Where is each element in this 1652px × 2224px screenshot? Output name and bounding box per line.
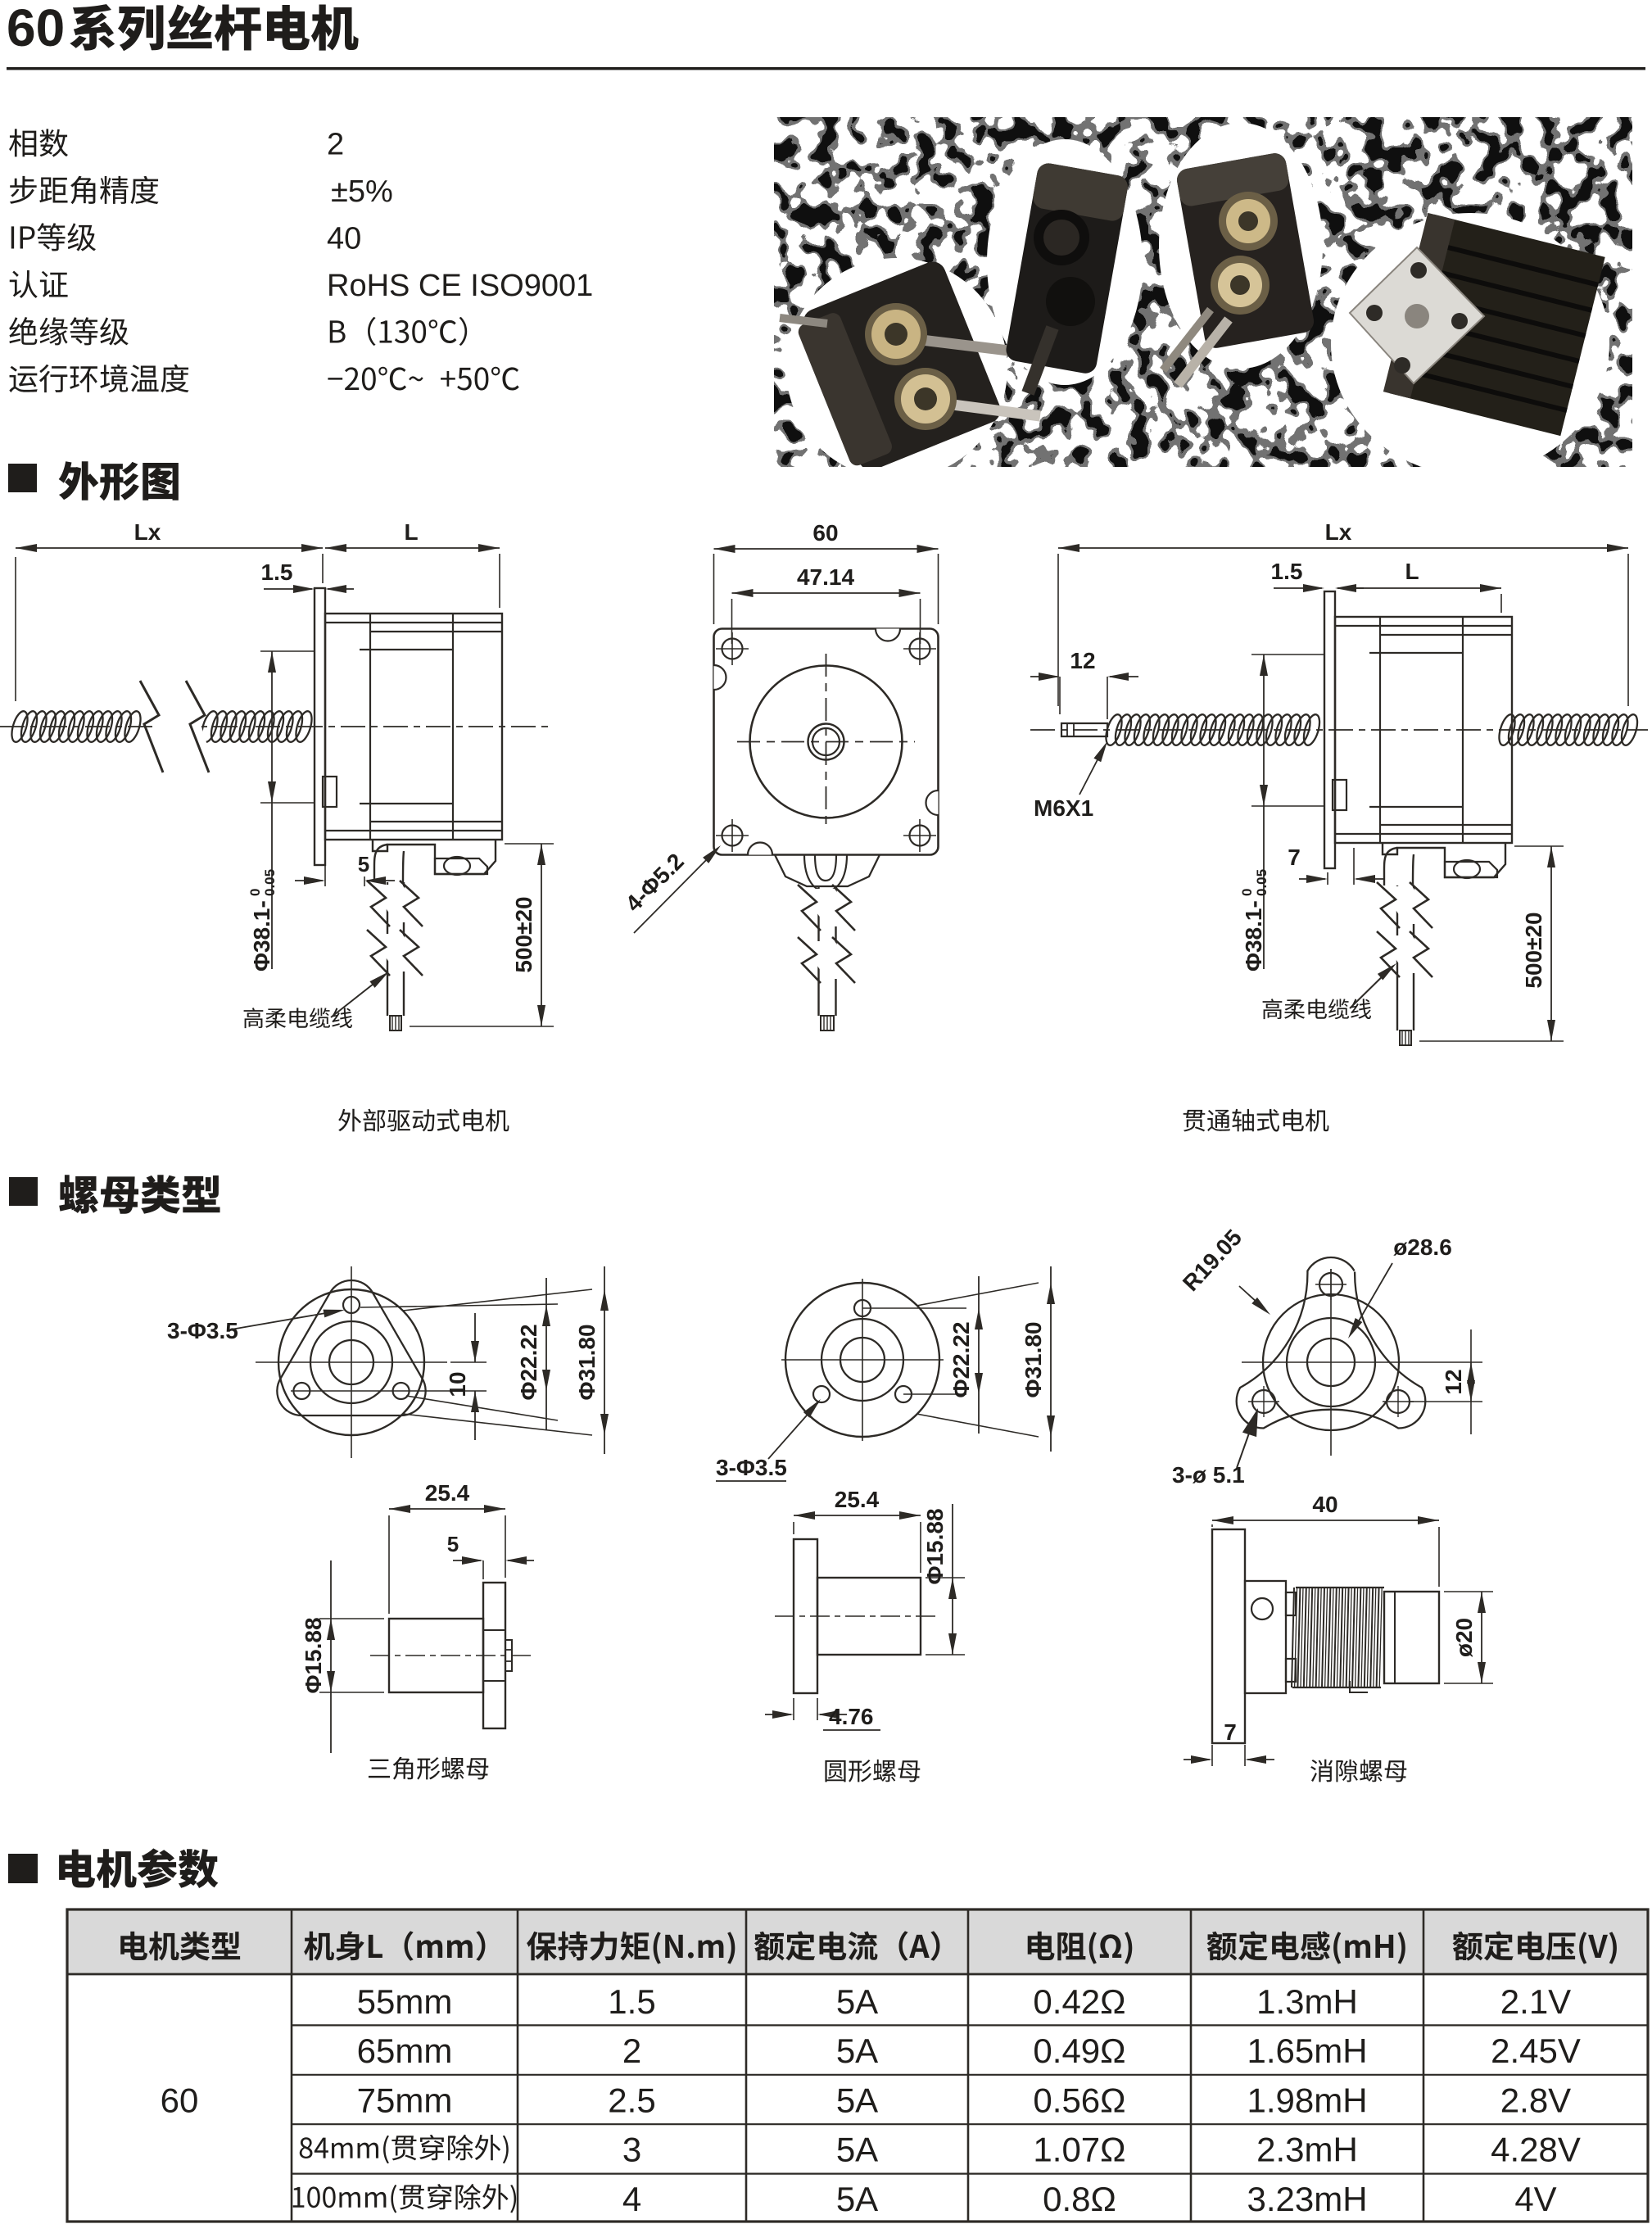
svg-text:75mm: 75mm bbox=[357, 2081, 453, 2119]
svg-text:500±20: 500±20 bbox=[511, 896, 536, 972]
svg-text:Φ38.1-: Φ38.1- bbox=[1241, 900, 1266, 972]
svg-text:65mm: 65mm bbox=[357, 2031, 453, 2070]
svg-text:Φ15.88: Φ15.88 bbox=[922, 1508, 948, 1584]
svg-text:60: 60 bbox=[812, 520, 838, 546]
svg-text:ø28.6: ø28.6 bbox=[1393, 1234, 1452, 1260]
svg-text:0.56Ω: 0.56Ω bbox=[1033, 2081, 1125, 2119]
svg-text:12: 12 bbox=[1441, 1369, 1466, 1394]
svg-text:3-Φ3.5: 3-Φ3.5 bbox=[167, 1318, 238, 1343]
svg-text:2.45V: 2.45V bbox=[1491, 2031, 1581, 2070]
svg-text:Φ31.80: Φ31.80 bbox=[574, 1324, 600, 1400]
svg-text:2: 2 bbox=[327, 128, 344, 162]
svg-text:5A: 5A bbox=[836, 2180, 878, 2218]
svg-text:3-Φ3.5: 3-Φ3.5 bbox=[716, 1455, 787, 1480]
svg-text:1.98mH: 1.98mH bbox=[1247, 2081, 1367, 2119]
svg-text:Φ22.22: Φ22.22 bbox=[948, 1321, 974, 1397]
svg-text:55mm: 55mm bbox=[357, 1982, 453, 2021]
svg-text:500±20: 500±20 bbox=[1521, 912, 1546, 988]
svg-text:0.49Ω: 0.49Ω bbox=[1033, 2031, 1125, 2070]
svg-text:3.23mH: 3.23mH bbox=[1247, 2180, 1367, 2218]
svg-text:0.05: 0.05 bbox=[1254, 869, 1270, 896]
svg-text:40: 40 bbox=[1312, 1492, 1337, 1517]
svg-text:RoHS CE ISO9001: RoHS CE ISO9001 bbox=[327, 269, 593, 303]
svg-text:2.8V: 2.8V bbox=[1500, 2081, 1571, 2119]
svg-text:7: 7 bbox=[1288, 845, 1301, 870]
svg-text:40: 40 bbox=[327, 222, 361, 256]
svg-text:47.14: 47.14 bbox=[797, 564, 854, 590]
svg-text:Lx: Lx bbox=[134, 519, 161, 545]
svg-text:2: 2 bbox=[622, 2031, 641, 2070]
svg-text:5A: 5A bbox=[836, 1982, 878, 2021]
svg-text:2.5: 2.5 bbox=[608, 2081, 655, 2119]
svg-text:Φ38.1-: Φ38.1- bbox=[249, 900, 274, 972]
svg-text:2.1V: 2.1V bbox=[1500, 1982, 1571, 2021]
svg-text:4: 4 bbox=[622, 2180, 641, 2218]
svg-text:12: 12 bbox=[1070, 648, 1095, 673]
svg-text:0.42Ω: 0.42Ω bbox=[1033, 1982, 1125, 2021]
svg-text:M6X1: M6X1 bbox=[1034, 795, 1093, 821]
svg-text:0: 0 bbox=[247, 889, 263, 896]
svg-text:4V: 4V bbox=[1514, 2180, 1556, 2218]
svg-text:60: 60 bbox=[7, 0, 65, 57]
svg-text:10: 10 bbox=[445, 1371, 470, 1397]
svg-text:0.05: 0.05 bbox=[262, 869, 278, 896]
svg-text:2.3mH: 2.3mH bbox=[1256, 2131, 1358, 2169]
svg-text:4.76: 4.76 bbox=[829, 1704, 874, 1729]
svg-text:1.65mH: 1.65mH bbox=[1247, 2031, 1367, 2070]
svg-text:25.4: 25.4 bbox=[835, 1487, 880, 1512]
svg-text:7: 7 bbox=[1224, 1719, 1237, 1745]
svg-text:25.4: 25.4 bbox=[425, 1480, 470, 1506]
svg-text:1.5: 1.5 bbox=[608, 1982, 655, 2021]
svg-text:Lx: Lx bbox=[1325, 519, 1352, 545]
svg-text:3-ø 5.1: 3-ø 5.1 bbox=[1172, 1462, 1245, 1488]
svg-text:Φ15.88: Φ15.88 bbox=[301, 1617, 326, 1693]
svg-text:5A: 5A bbox=[836, 2131, 878, 2169]
svg-text:±5%: ±5% bbox=[331, 174, 393, 209]
svg-text:1.07Ω: 1.07Ω bbox=[1033, 2131, 1125, 2169]
svg-text:5A: 5A bbox=[836, 2081, 878, 2119]
svg-text:0: 0 bbox=[1239, 889, 1255, 896]
svg-text:L: L bbox=[404, 519, 418, 545]
svg-text:Φ31.80: Φ31.80 bbox=[1021, 1321, 1046, 1397]
svg-text:60: 60 bbox=[161, 2081, 199, 2119]
svg-text:5A: 5A bbox=[836, 2031, 878, 2070]
svg-text:5: 5 bbox=[447, 1532, 459, 1556]
svg-text:1.5: 1.5 bbox=[261, 559, 293, 585]
svg-text:Φ22.22: Φ22.22 bbox=[516, 1324, 541, 1400]
svg-text:5: 5 bbox=[358, 852, 369, 876]
svg-text:L: L bbox=[1405, 559, 1419, 584]
svg-text:3: 3 bbox=[622, 2131, 641, 2169]
svg-text:4.28V: 4.28V bbox=[1491, 2131, 1581, 2169]
svg-text:ø20: ø20 bbox=[1451, 1618, 1477, 1657]
svg-text:1.5: 1.5 bbox=[1271, 559, 1303, 584]
svg-text:0.8Ω: 0.8Ω bbox=[1043, 2180, 1116, 2218]
svg-text:1.3mH: 1.3mH bbox=[1256, 1982, 1358, 2021]
